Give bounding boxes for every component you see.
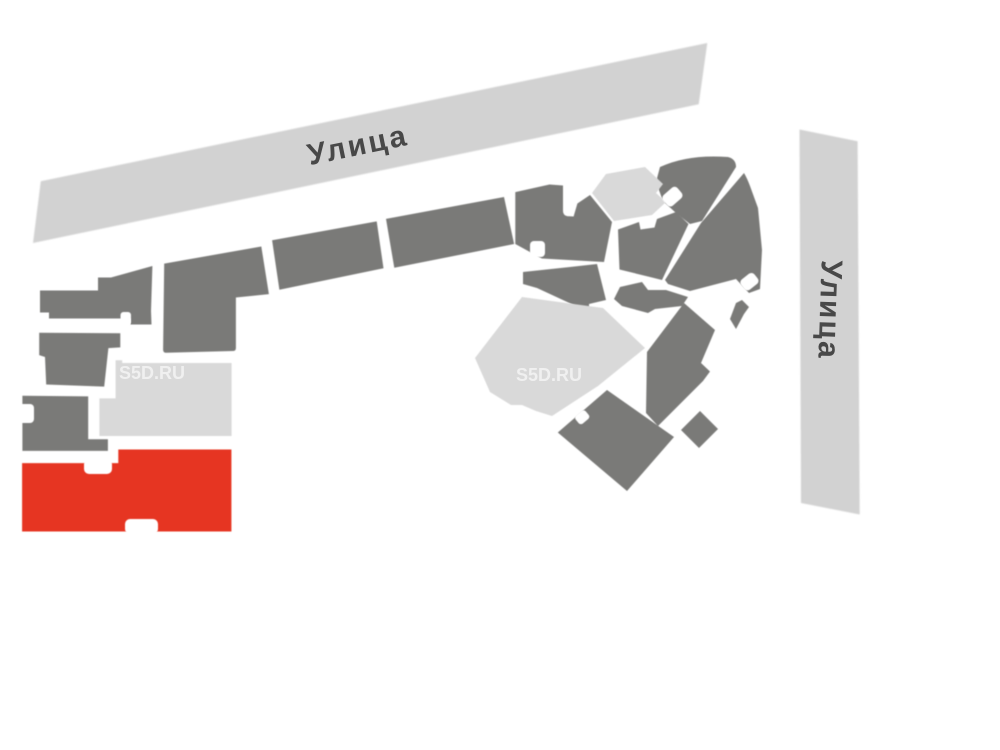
svg-text:S5D.RU: S5D.RU (516, 365, 582, 385)
svg-text:S5D.RU: S5D.RU (119, 363, 185, 383)
svg-text:Улица: Улица (811, 260, 847, 361)
